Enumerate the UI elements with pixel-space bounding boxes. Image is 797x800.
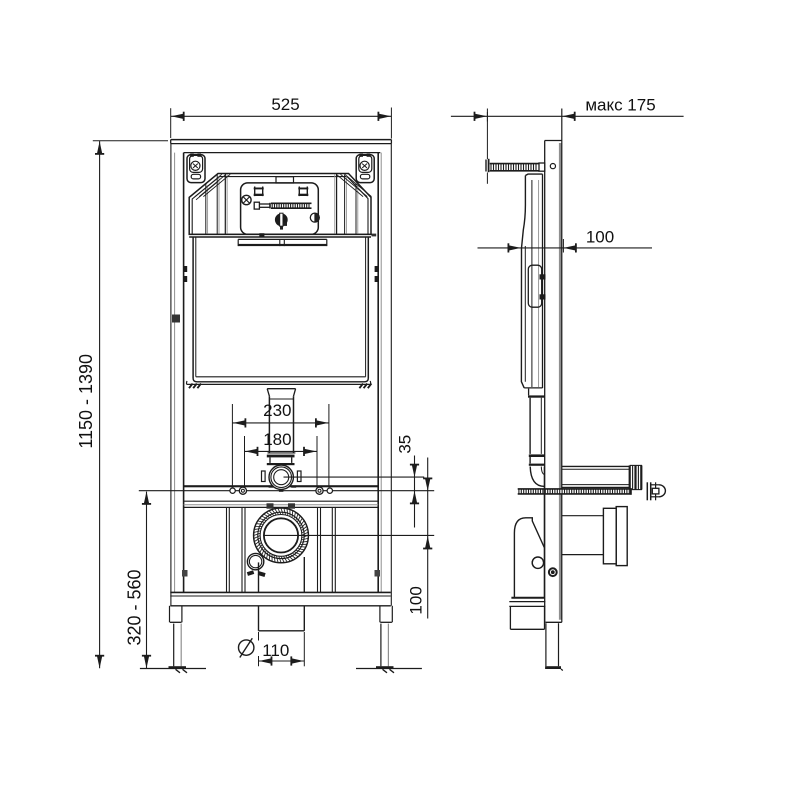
svg-text:180: 180 <box>263 430 291 449</box>
svg-text:320 - 560: 320 - 560 <box>125 569 145 645</box>
svg-text:1150 - 1390: 1150 - 1390 <box>76 354 96 449</box>
svg-text:100: 100 <box>586 227 614 246</box>
svg-text:100: 100 <box>406 586 425 614</box>
svg-text:110: 110 <box>262 641 289 660</box>
svg-text:525: 525 <box>271 95 299 114</box>
svg-text:230: 230 <box>263 401 291 420</box>
svg-text:35: 35 <box>396 435 415 454</box>
svg-text:макс 175: макс 175 <box>585 96 655 115</box>
